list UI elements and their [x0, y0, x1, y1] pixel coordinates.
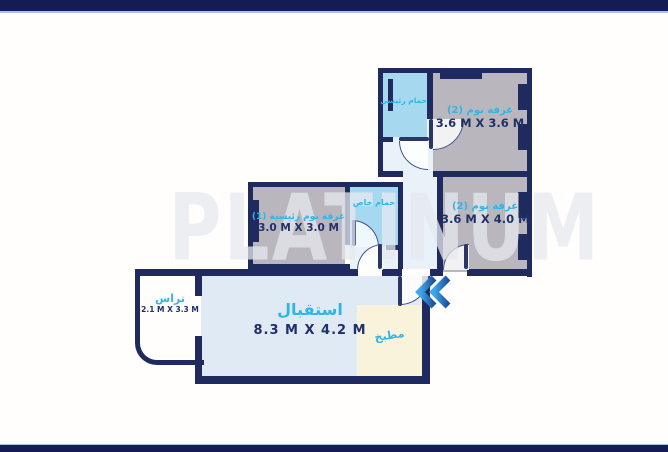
wall — [467, 269, 532, 276]
master-bedroom-dims: 3.0 M X 3.0 M — [252, 222, 345, 234]
terrace-outline-wall — [135, 274, 204, 365]
main-bathroom-label: حمام رئيسي — [383, 97, 427, 106]
top-frame-bar — [0, 0, 668, 13]
floor-plan-canvas: PLATINUM غرفة نوم (2) 3.6 M X 3.6 M غرفة… — [0, 0, 668, 452]
bedroom-right-dims: 3.6 M X 4.0 M — [441, 213, 529, 226]
door-leaf — [464, 244, 468, 269]
terrace-label: تراس — [140, 293, 200, 306]
wall — [248, 182, 403, 187]
hall-floor — [403, 171, 437, 269]
wall — [383, 137, 393, 142]
wall — [135, 269, 358, 276]
reception-label: استقبال — [230, 301, 390, 319]
terrace-dims: 2.1 M X 3.3 M — [140, 306, 200, 315]
wall — [195, 376, 430, 384]
wall — [378, 68, 532, 73]
wall — [378, 68, 383, 172]
window-bar — [518, 234, 527, 260]
wall — [527, 68, 532, 177]
bedroom-top-label: غرفة نوم (2) — [433, 105, 527, 117]
window-bar — [440, 73, 482, 79]
master-bedroom-label: غرفة نوم رئيسية (1) — [252, 212, 345, 222]
door-leaf — [378, 244, 382, 269]
wall — [345, 187, 350, 245]
wall — [398, 182, 403, 269]
private-bathroom-label: حمام خاص — [350, 198, 398, 207]
wall — [386, 245, 398, 250]
bedroom-top-dims: 3.6 M X 3.6 M — [433, 117, 527, 130]
wall — [378, 171, 403, 177]
wall — [382, 269, 402, 276]
entrance-double-chevron-left-icon — [410, 274, 452, 310]
window-bar — [388, 79, 393, 111]
door-leaf — [352, 220, 356, 246]
door-leaf — [399, 137, 429, 141]
door-leaf — [398, 276, 402, 306]
wall — [433, 171, 532, 177]
bedroom-right-label: غرفة نوم (2) — [441, 201, 529, 213]
bottom-frame-bar — [0, 444, 668, 452]
